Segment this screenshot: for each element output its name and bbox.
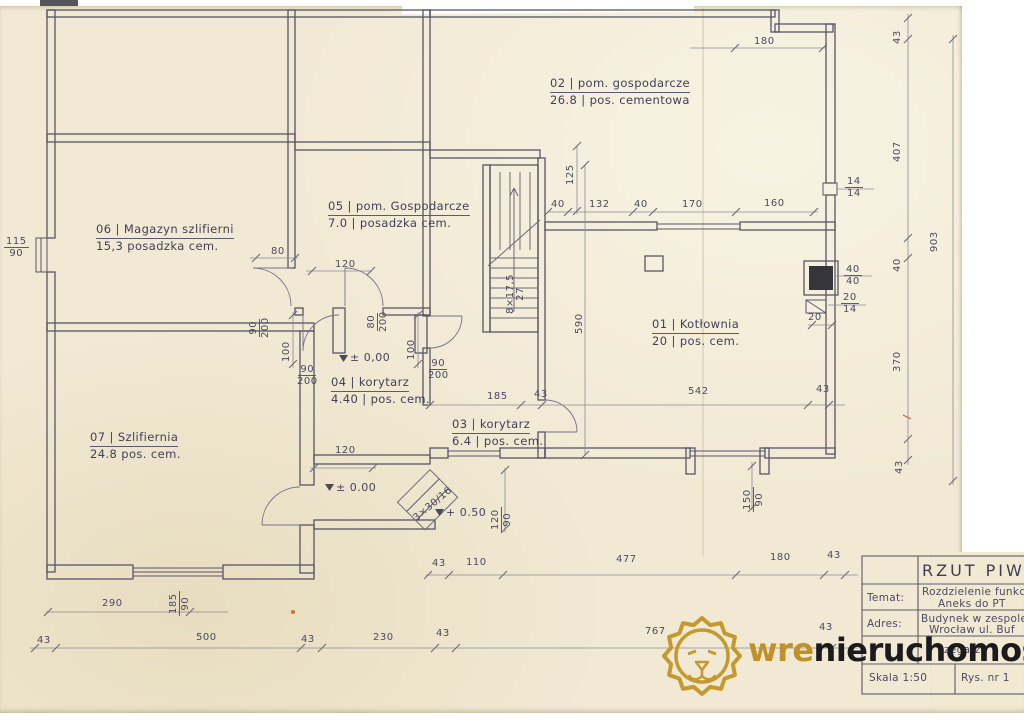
room-07-name: 07 | Szlifiernia xyxy=(90,430,178,447)
room-01-name: 01 | Kotłownia xyxy=(652,317,739,334)
room-label-05: 05 | pom. Gospodarcze 7.0 | posadzka cem… xyxy=(328,199,470,231)
exterior-steps xyxy=(397,470,457,530)
window-size-label: 18590 xyxy=(168,591,191,616)
room-06-area: 15,3 posadzka cem. xyxy=(96,239,234,254)
dim-label: 110 xyxy=(466,558,487,568)
room-label-01: 01 | Kotłownia 20 | pos. cem. xyxy=(652,317,739,349)
room-02-name: 02 | pom. gospodarcze xyxy=(550,76,690,93)
dim-label: 43 xyxy=(301,635,315,645)
dim-label-vertical: 100 xyxy=(407,339,417,360)
dim-label: 40 xyxy=(634,200,648,210)
dim-label: 43 xyxy=(534,390,548,400)
dim-label: 160 xyxy=(764,199,785,209)
chimney-size-label: 4040 xyxy=(844,264,862,287)
room-01-area: 20 | pos. cem. xyxy=(652,334,739,349)
room-05-area: 7.0 | posadzka cem. xyxy=(328,216,470,231)
stair-note: 8×17,527 xyxy=(506,274,526,314)
door-size-label: 90200 xyxy=(428,358,449,381)
dim-label: 185 xyxy=(487,392,508,402)
opening-size-label: 1414 xyxy=(845,176,863,199)
dim-label-vertical: 100 xyxy=(282,341,292,362)
dim-label: 43 xyxy=(432,559,446,569)
dim-label: 120 xyxy=(335,446,356,456)
room-label-02: 02 | pom. gospodarcze 26.8 | pos. cement… xyxy=(550,76,690,108)
dim-label-vertical: 590 xyxy=(575,313,585,334)
room-02-area: 26.8 | pos. cementowa xyxy=(550,93,690,108)
door-size-label: 80200 xyxy=(366,311,389,332)
dimension-ticks xyxy=(31,14,957,652)
temat-label: Temat: xyxy=(867,592,904,604)
brand-wordmark: wrenieruchomości xyxy=(748,634,1024,666)
door-size-label: 90200 xyxy=(297,364,318,387)
room-label-04: 04 | korytarz 4.40 | pos. cem. xyxy=(331,375,430,407)
room-label-06: 06 | Magazyn szlifierni 15,3 posadzka ce… xyxy=(96,222,234,254)
window-size-label: 11590 xyxy=(4,236,29,259)
level-label-zero: ± 0,00 xyxy=(350,351,390,364)
dim-label: 43 xyxy=(37,636,51,646)
scan-dot xyxy=(291,610,295,614)
dim-label-vertical: 125 xyxy=(566,164,576,185)
room-06-name: 06 | Magazyn szlifierni xyxy=(96,222,234,239)
dim-label-vertical: 43 xyxy=(895,460,905,474)
dim-label: 170 xyxy=(682,200,703,210)
dim-label: 180 xyxy=(754,37,775,47)
watermark-logo: wrenieruchomości xyxy=(656,608,1024,708)
dim-label: 230 xyxy=(373,633,394,643)
opening-size-label: 15090 xyxy=(742,487,765,512)
room-03-area: 6.4 | pos. cem. xyxy=(452,434,543,449)
dim-label-vertical: 43 xyxy=(893,30,903,44)
dim-label: 80 xyxy=(271,247,285,257)
dim-label: 500 xyxy=(196,633,217,643)
brand-gold-text: wre xyxy=(748,631,814,669)
level-label-zero-2: ± 0.00 xyxy=(336,481,376,494)
dim-label: 40 xyxy=(551,200,565,210)
red-pen-mark xyxy=(903,415,911,419)
dim-label-vertical: 407 xyxy=(893,141,903,162)
exterior-step-size-label: 12090 xyxy=(490,507,513,532)
dim-label: 180 xyxy=(770,553,791,563)
level-label-plus050: + 0.50 xyxy=(446,506,486,519)
dim-label-vertical: 370 xyxy=(893,351,903,372)
dim-label: 290 xyxy=(102,599,123,609)
dim-label-vertical: 903 xyxy=(930,231,940,252)
dim-label: 43 xyxy=(816,385,830,395)
room-03-name: 03 | korytarz xyxy=(452,417,530,434)
scanned-floor-plan: 02 | pom. gospodarcze 26.8 | pos. cement… xyxy=(0,0,1024,723)
room-label-03: 03 | korytarz 6.4 | pos. cem. xyxy=(452,417,543,449)
door-size-label: 90200 xyxy=(248,317,271,338)
dim-label-vertical: 40 xyxy=(893,258,903,272)
room-04-name: 04 | korytarz xyxy=(331,375,409,392)
room-07-area: 24.8 pos. cem. xyxy=(90,447,181,462)
brand-dark-text: nieruchomości xyxy=(814,631,1024,669)
temat-value-line1: Rozdzielenie funkc xyxy=(922,586,1024,598)
room-04-area: 4.40 | pos. cem. xyxy=(331,392,430,407)
room-label-07: 07 | Szlifiernia 24.8 pos. cem. xyxy=(90,430,181,462)
dim-label: 477 xyxy=(616,555,637,565)
dim-label: 542 xyxy=(688,387,709,397)
dim-label: 20 xyxy=(808,313,822,323)
dim-label: 120 xyxy=(335,260,356,270)
dim-label: 43 xyxy=(827,551,841,561)
dim-label: 43 xyxy=(436,629,450,639)
flue-size-label: 2014 xyxy=(841,292,859,315)
dim-label: 132 xyxy=(589,200,610,210)
room-05-name: 05 | pom. Gospodarcze xyxy=(328,199,470,216)
drawing-title: RZUT PIWN xyxy=(922,561,1024,580)
lion-icon xyxy=(656,610,748,702)
